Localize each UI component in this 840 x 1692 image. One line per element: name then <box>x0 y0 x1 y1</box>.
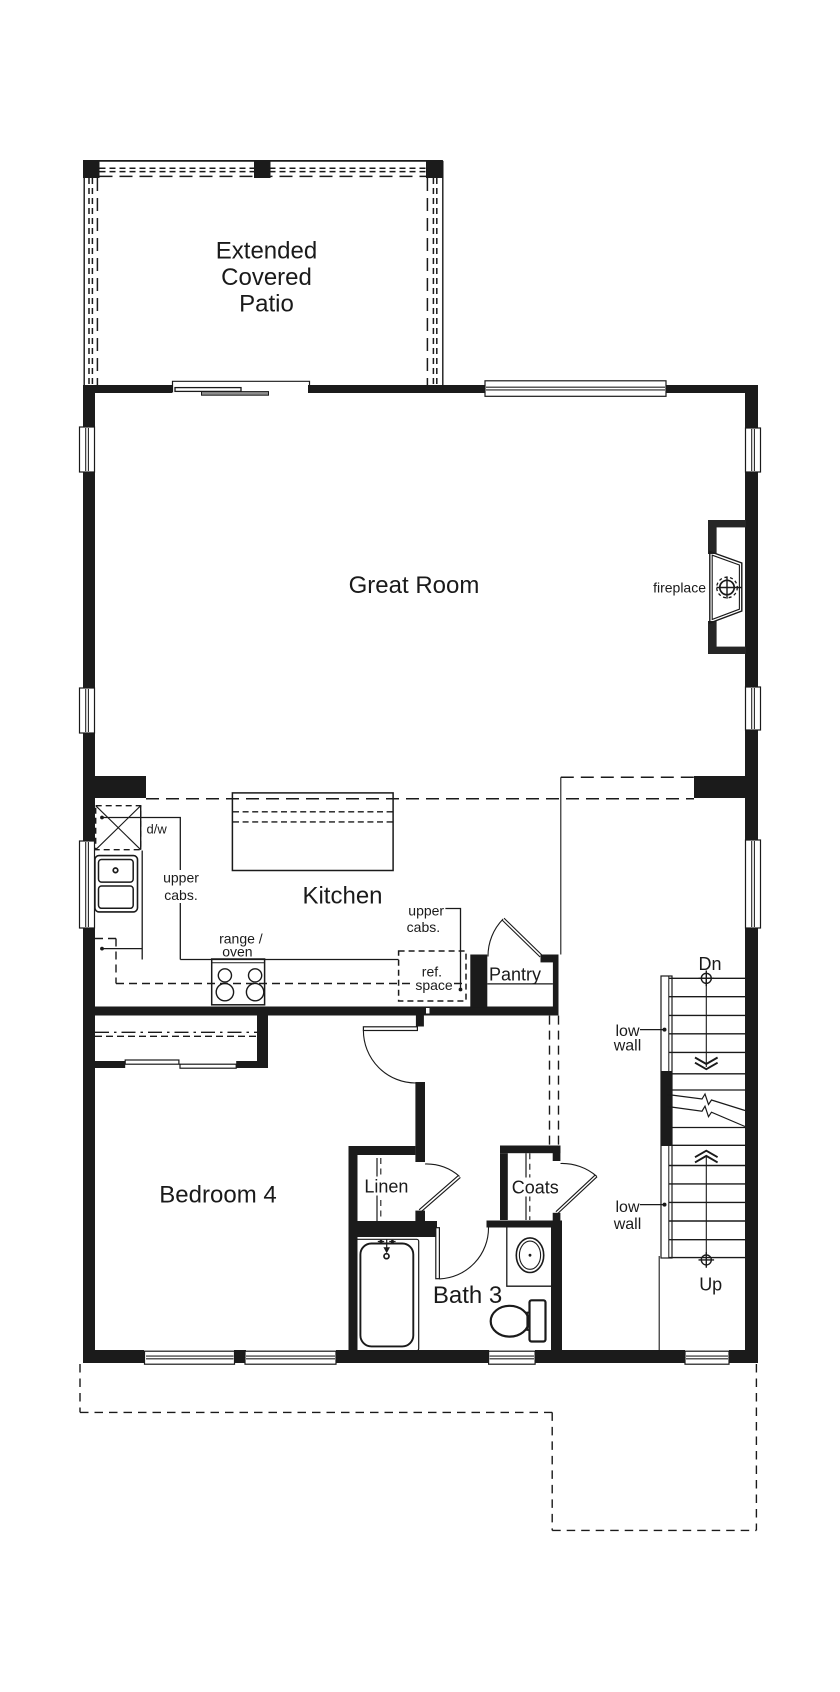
svg-text:upper: upper <box>163 869 199 885</box>
svg-text:Great Room: Great Room <box>349 572 480 599</box>
svg-text:wall: wall <box>613 1037 642 1054</box>
svg-text:Coats: Coats <box>512 1177 559 1197</box>
svg-text:cabs.: cabs. <box>164 887 197 903</box>
svg-text:cabs.: cabs. <box>407 919 440 935</box>
svg-text:Covered: Covered <box>221 264 312 291</box>
svg-text:Up: Up <box>699 1274 722 1294</box>
svg-text:Kitchen: Kitchen <box>302 883 382 910</box>
svg-text:Extended: Extended <box>216 238 317 265</box>
svg-text:oven: oven <box>222 944 252 960</box>
svg-text:Bath 3: Bath 3 <box>433 1282 502 1309</box>
svg-text:Pantry: Pantry <box>489 964 541 984</box>
svg-text:Dn: Dn <box>698 954 721 974</box>
svg-text:Linen: Linen <box>364 1176 408 1196</box>
svg-text:fireplace: fireplace <box>653 579 706 595</box>
svg-text:Patio: Patio <box>239 291 294 318</box>
svg-text:d/w: d/w <box>147 821 168 836</box>
svg-text:low: low <box>615 1199 639 1216</box>
svg-text:upper: upper <box>408 902 444 918</box>
svg-text:Bedroom 4: Bedroom 4 <box>159 1181 276 1208</box>
svg-text:space: space <box>415 977 453 993</box>
svg-text:wall: wall <box>613 1216 642 1233</box>
